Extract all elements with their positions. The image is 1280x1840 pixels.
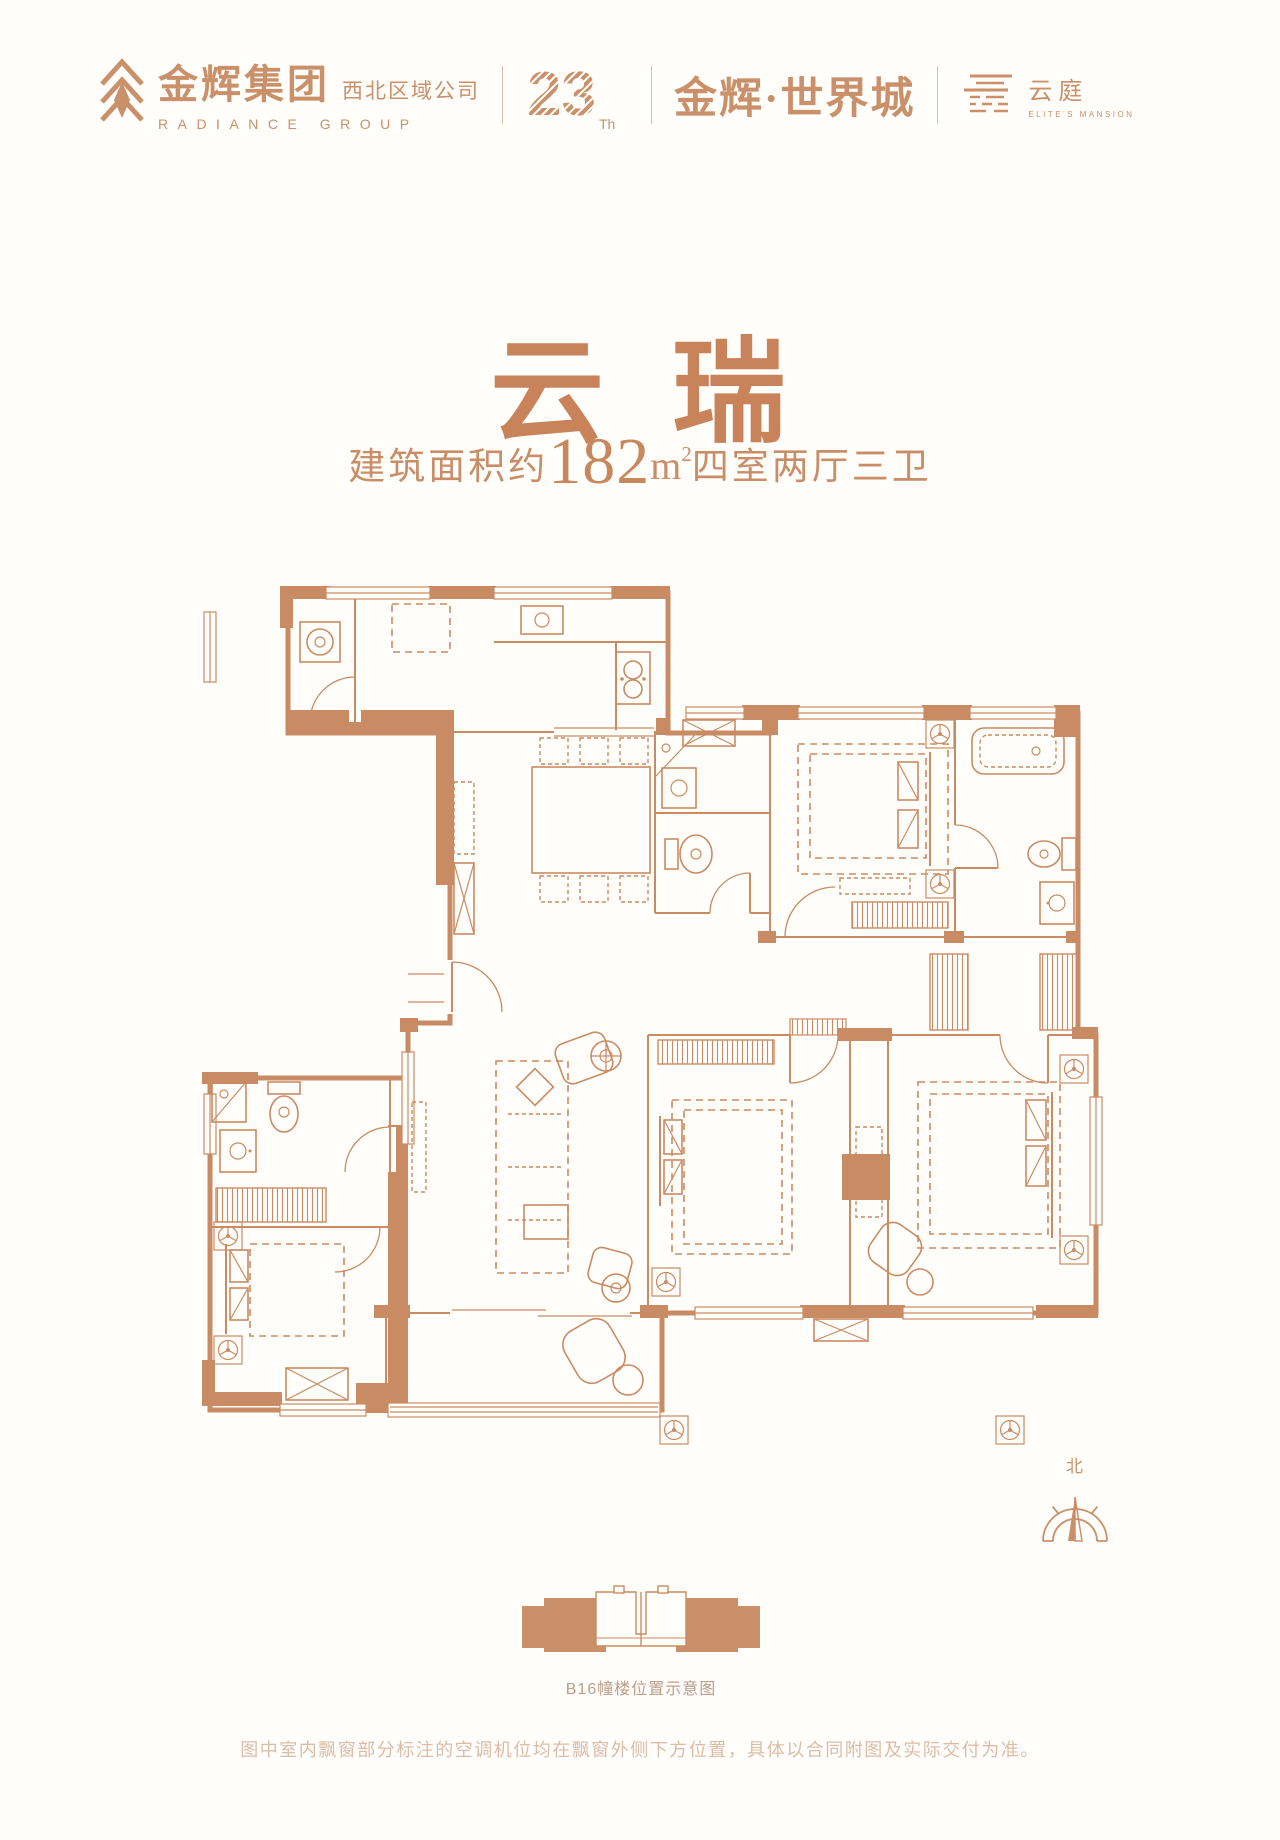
compass: 北 (1030, 1452, 1120, 1554)
master-bedroom (798, 720, 954, 928)
area-unit: m (650, 443, 681, 488)
disclaimer-text: 图中室内飘窗部分标注的空调机位均在飘窗外侧下方位置，具体以合同附图及实际交付为准… (0, 1736, 1280, 1762)
balcony-slider (450, 1308, 632, 1319)
mansion-name-cn: 云庭 (1028, 71, 1134, 106)
building-locator: B16幢楼位置示意图 (516, 1576, 766, 1699)
bathroom-center (655, 720, 735, 873)
mansion-name-en: ELITE'S MANSION (1028, 110, 1134, 119)
bedroom-left (214, 1222, 348, 1400)
poster-page: 金辉集团 西北区域公司 RADIANCE GROUP 23 Th 金辉·世 (0, 0, 1280, 1840)
group-region: 西北区域公司 (342, 75, 480, 105)
mansion-logo: 云庭 ELITE'S MANSION (960, 70, 1134, 121)
living-room (412, 1029, 634, 1302)
header-divider (651, 66, 652, 124)
ac-platforms (660, 1319, 1024, 1444)
header-divider (502, 66, 503, 124)
compass-icon (1030, 1536, 1120, 1553)
anniversary-23-icon: 23 Th (525, 57, 629, 133)
brand-header: 金辉集团 西北区域公司 RADIANCE GROUP 23 Th 金辉·世 (96, 50, 1135, 140)
svg-text:Th: Th (599, 116, 615, 132)
group-name-en: RADIANCE GROUP (158, 116, 480, 132)
entry-steps (408, 974, 444, 1002)
foyer-area (454, 782, 474, 934)
hall-closets (790, 954, 1078, 1035)
radiance-group-logo: 金辉集团 西北区域公司 RADIANCE GROUP (96, 52, 480, 139)
bedroom-right (863, 1055, 1088, 1295)
radiance-logo-icon (96, 52, 148, 139)
area-sup: 2 (681, 442, 692, 466)
unit-spec: 建筑面积约182m2四室两厅三卫 (0, 424, 1280, 500)
master-bathroom (972, 717, 1077, 924)
compass-north-label: 北 (1030, 1452, 1120, 1477)
building-locator-icon (516, 1643, 766, 1660)
header-divider (937, 66, 938, 124)
layout-text: 四室两厅三卫 (692, 447, 932, 488)
bathroom-left (212, 1082, 326, 1222)
balcony (557, 1313, 643, 1395)
svg-text:23: 23 (527, 60, 596, 129)
group-name-cn: 金辉集团 (158, 52, 330, 110)
area-value: 182 (548, 425, 650, 498)
floor-plan (150, 582, 1108, 1447)
area-prefix: 建筑面积约 (348, 447, 548, 488)
project-name: 金辉·世界城 (674, 64, 915, 126)
dining-area (532, 738, 650, 902)
mansion-pavilion-icon (960, 70, 1016, 121)
locator-caption: B16幢楼位置示意图 (516, 1675, 766, 1699)
